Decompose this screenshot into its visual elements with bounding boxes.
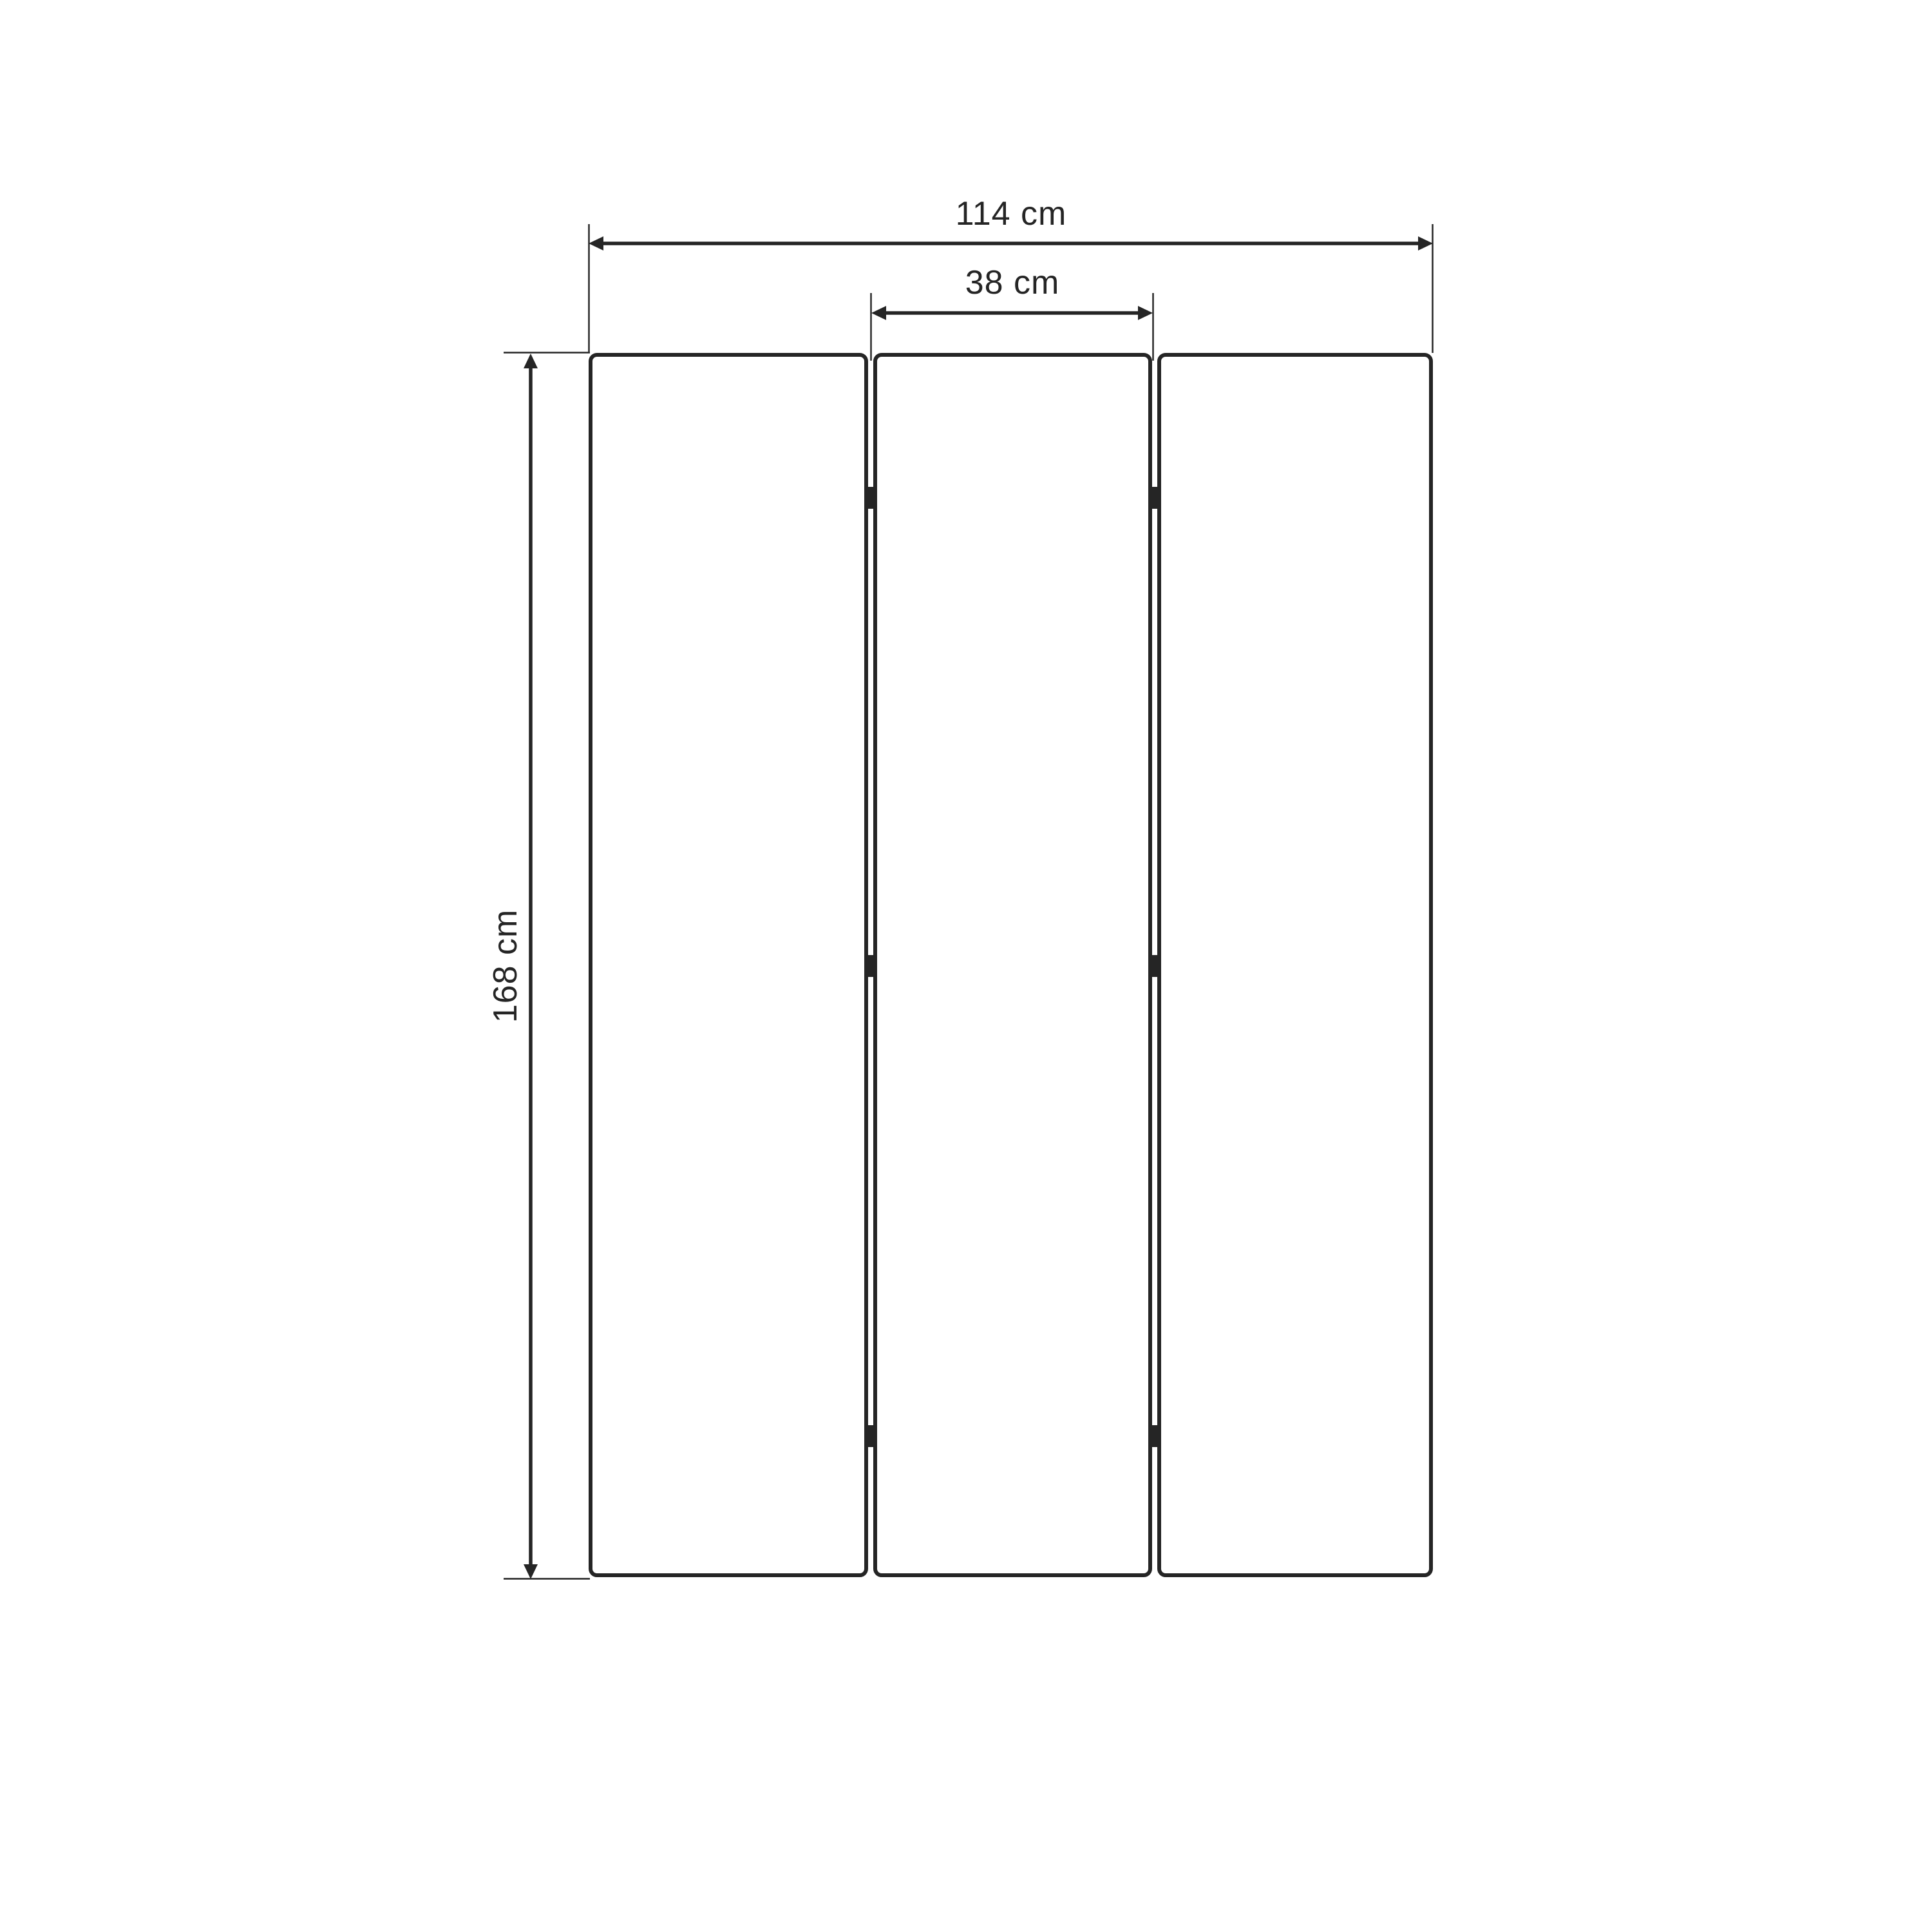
hinge-left-middle (867, 955, 875, 977)
dimension-label-panel-width: 38 cm (965, 264, 1060, 301)
arrowhead-right-icon (1138, 306, 1153, 320)
hinge-right-middle (1151, 955, 1159, 977)
arrowhead-up-icon (524, 354, 538, 368)
arrowhead-left-icon (589, 236, 603, 251)
hinge-right-bottom (1151, 1425, 1159, 1447)
arrowhead-left-icon (871, 306, 886, 320)
dimension-panel-width: 38 cm (871, 264, 1153, 361)
arrowhead-right-icon (1418, 236, 1433, 251)
hinge-left-bottom (867, 1425, 875, 1447)
dimension-label-total-width: 114 cm (956, 195, 1067, 232)
dimension-label-height: 168 cm (487, 909, 524, 1023)
panel-3 (1159, 355, 1431, 1575)
dimension-height: 168 cm (487, 353, 590, 1580)
arrowhead-down-icon (524, 1564, 538, 1579)
panel-1 (591, 355, 866, 1575)
hinge-left-top (867, 487, 875, 509)
hinge-right-top (1151, 487, 1159, 509)
dimension-drawing: 114 cm 38 cm 168 cm (0, 0, 1932, 1932)
panel-2 (875, 355, 1150, 1575)
panels (591, 355, 1431, 1575)
